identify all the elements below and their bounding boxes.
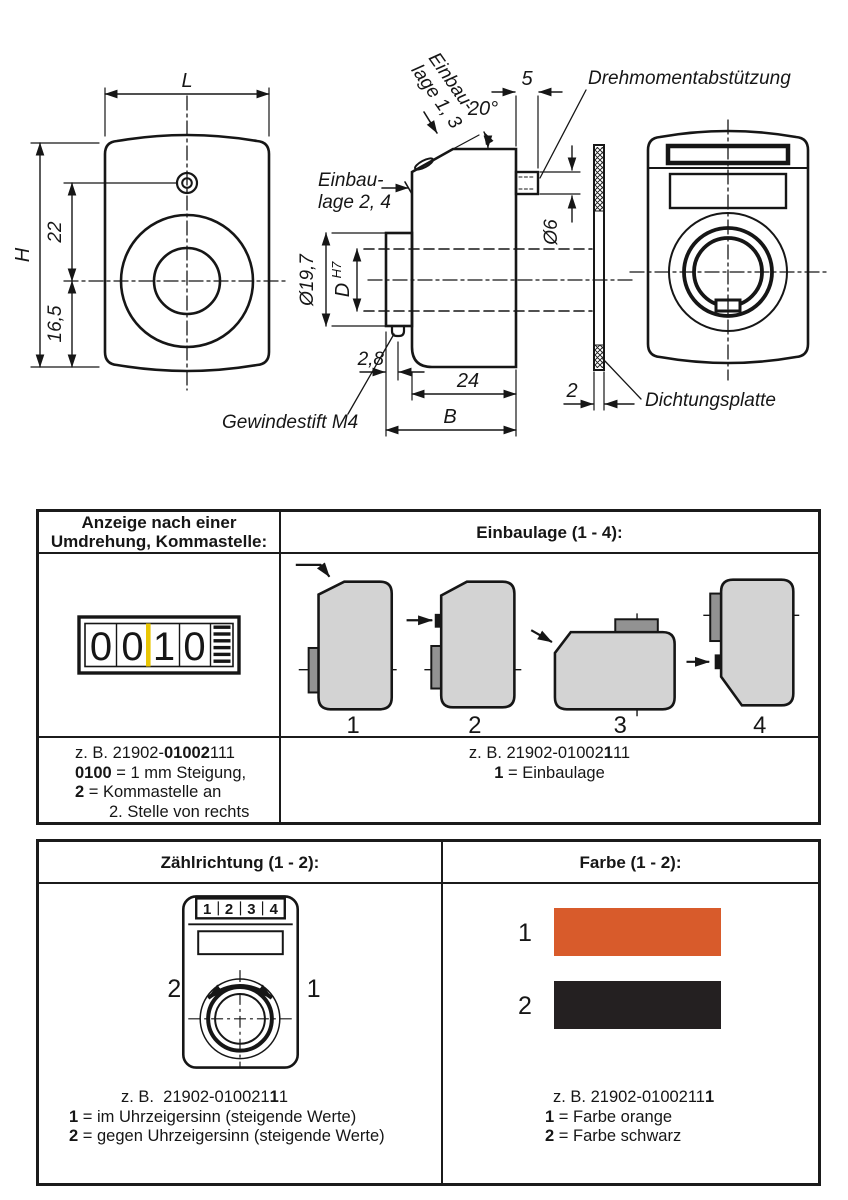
svg-text:4: 4 xyxy=(753,713,766,736)
dim-22: 22 xyxy=(45,221,66,244)
dim-d19-7: Ø19,7 xyxy=(297,253,318,307)
header-zaehlrichtung: Zählrichtung (1 - 2): xyxy=(39,842,443,884)
swatch-orange-number: 1 xyxy=(518,919,532,947)
pos2-nub xyxy=(435,614,441,627)
ordering-example-anzeige: z. B. 21902-01002111 0100 = 1 mm Steigun… xyxy=(39,736,281,822)
dim-L: L xyxy=(181,70,192,92)
label-einbaulage-24: Einbau- lage 2, 4 xyxy=(318,170,391,213)
pos3-arrow xyxy=(531,630,552,642)
svg-text:3: 3 xyxy=(247,901,255,918)
swatch-orange xyxy=(554,908,721,956)
ordering-example-farbe: z. B. 21902-01002111 1 = Farbe orange 2 … xyxy=(443,1082,818,1147)
counter-stripe-block xyxy=(214,626,231,663)
svg-text:3: 3 xyxy=(614,713,627,736)
dim-2-8: 2,8 xyxy=(357,349,385,370)
svg-text:1: 1 xyxy=(203,901,211,918)
pos1-tab xyxy=(309,648,319,693)
front-view xyxy=(31,88,289,390)
pos2-body xyxy=(441,582,514,708)
dim-24: 24 xyxy=(456,370,479,392)
comma-marker xyxy=(146,624,151,667)
svg-text:0: 0 xyxy=(121,625,143,669)
svg-text:1: 1 xyxy=(347,713,360,736)
label-gewindestift-m4: Gewindestift M4 xyxy=(222,412,358,433)
angle-arc-20 xyxy=(484,132,488,148)
leader-drehmoment xyxy=(540,90,586,178)
svg-text:0: 0 xyxy=(183,625,205,669)
leader-einbaulage13 xyxy=(424,112,437,133)
label-einbaulage-13: Einbau- lage 1, 3 xyxy=(407,49,483,133)
header-anzeige: Anzeige nach einer Umdrehung, Kommastell… xyxy=(39,512,281,554)
pos4-tab xyxy=(710,594,721,641)
header-einbaulage: Einbaulage (1 - 4): xyxy=(281,512,818,554)
direction-label-cw: 1 xyxy=(307,975,321,1003)
pos3-tab xyxy=(615,619,658,632)
dim-D: D xyxy=(332,283,354,297)
label-drehmomentabstuetzung: Drehmomentabstützung xyxy=(588,68,791,89)
pos4-body xyxy=(721,580,793,706)
svg-text:2: 2 xyxy=(225,901,233,918)
svg-text:0: 0 xyxy=(90,625,112,669)
counter-display-graphic: 0 0 1 0 xyxy=(77,615,241,675)
einbaulage-positions-cell: 1 2 3 4 xyxy=(281,554,818,736)
dim-d6: Ø6 xyxy=(541,219,562,246)
einbaulage-positions-graphic: 1 2 3 4 xyxy=(283,554,816,736)
direction-label-ccw: 2 xyxy=(167,975,181,1003)
pos2-tab xyxy=(431,646,441,689)
pos3-body xyxy=(555,632,675,709)
farbe-cell: 1 2 z. B. 21902-01002111 1 = Farbe orang… xyxy=(443,884,818,1183)
leader-dichtungsplatte xyxy=(603,359,641,399)
counter-display-cell: 0 0 1 0 xyxy=(39,554,281,736)
back-view xyxy=(630,120,826,380)
dim-16-5: 16,5 xyxy=(45,305,66,342)
zaehlrichtung-graphic: 1 2 3 4 2 1 xyxy=(39,884,441,1082)
swatch-black xyxy=(554,981,721,1029)
svg-text:4: 4 xyxy=(270,901,279,918)
sealing-plate-view xyxy=(564,145,641,410)
label-dichtungsplatte: Dichtungsplatte xyxy=(645,390,776,411)
pos4-nub xyxy=(715,655,721,669)
dim-H: H xyxy=(12,247,34,262)
side-body-outline xyxy=(412,149,516,367)
catalog-drawing-page: L H 22 16,5 xyxy=(0,0,848,1200)
dim-2: 2 xyxy=(565,380,577,402)
leader-gewindestift xyxy=(348,334,394,414)
header-farbe: Farbe (1 - 2): xyxy=(443,842,818,884)
pos1-arrow xyxy=(296,565,330,577)
svg-text:Einbau-: Einbau- xyxy=(318,170,384,191)
technical-drawing: L H 22 16,5 xyxy=(0,0,848,500)
dim-D-tolerance: H7 xyxy=(329,261,344,278)
dim-5: 5 xyxy=(521,68,533,90)
swatch-black-number: 2 xyxy=(518,992,532,1020)
svg-text:lage 2, 4: lage 2, 4 xyxy=(318,192,391,213)
dim-B: B xyxy=(443,406,456,428)
ordering-example-einbaulage: z. B. 21902-01002111 1 = Einbaulage xyxy=(281,736,818,822)
farbe-graphic: 1 2 xyxy=(445,884,817,1082)
ordering-example-zaehlrichtung: z. B. 21902-01002111 1 = im Uhrzeigersin… xyxy=(39,1082,441,1147)
back-centerlines xyxy=(630,120,826,380)
position-numbers: 1 2 3 4 xyxy=(347,713,767,736)
zaehlrichtung-cell: 1 2 3 4 2 1 z. B. 21902-01002111 1 = im … xyxy=(39,884,443,1183)
torque-pin xyxy=(516,172,538,194)
knob-label-window xyxy=(198,931,283,954)
pos1-body xyxy=(319,582,392,710)
svg-text:1: 1 xyxy=(153,625,175,669)
svg-text:2: 2 xyxy=(468,713,481,736)
options-table-anzeige-einbaulage: Anzeige nach einer Umdrehung, Kommastell… xyxy=(36,509,821,825)
options-table-zaehlrichtung-farbe: Zählrichtung (1 - 2): Farbe (1 - 2): xyxy=(36,839,821,1186)
